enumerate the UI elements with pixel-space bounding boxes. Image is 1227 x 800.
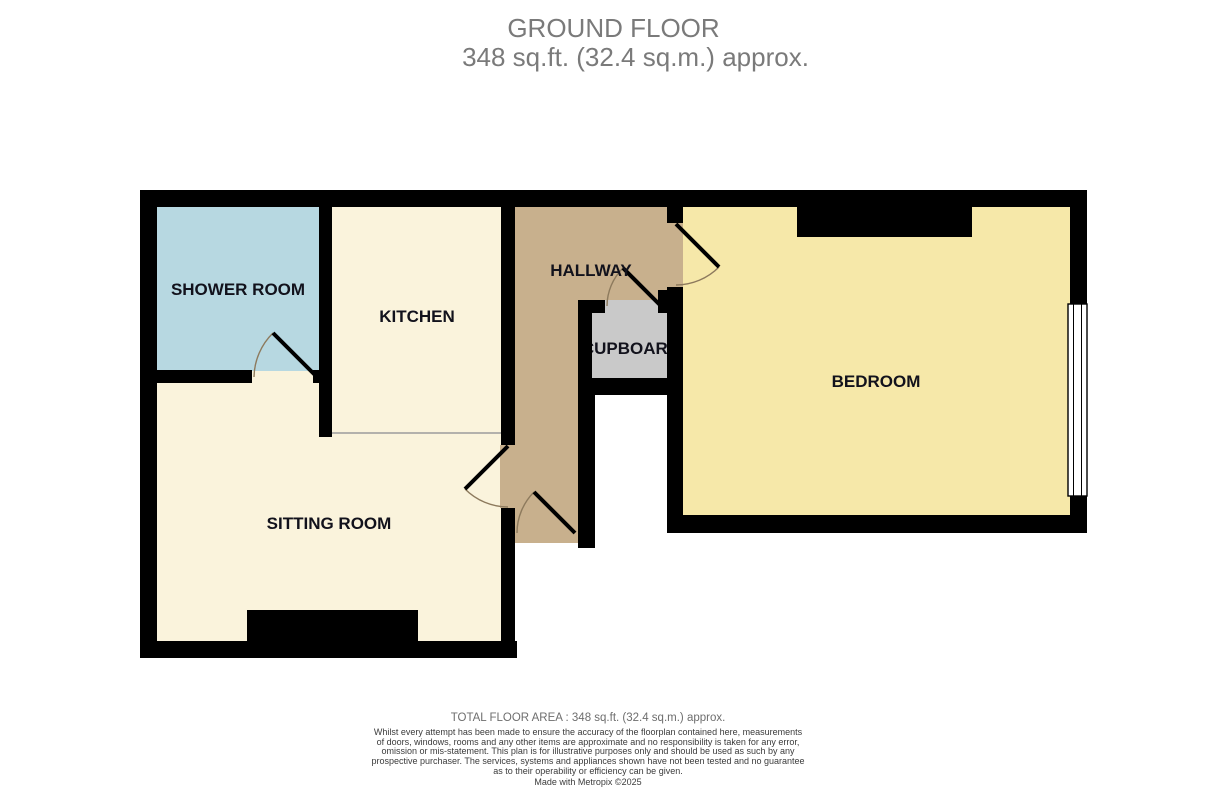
- wall: [1070, 190, 1087, 305]
- metropix-credit: Made with Metropix ©2025: [0, 777, 1176, 788]
- window-pane: [1068, 304, 1087, 496]
- wall: [667, 515, 1087, 533]
- wall: [578, 395, 595, 548]
- wall: [140, 190, 157, 658]
- disclaimer: Whilst every attempt has been made to en…: [0, 728, 1176, 777]
- bedroom-doorway-floor: [667, 222, 683, 287]
- cupboard-label: CUPBOARD: [582, 339, 680, 358]
- kitchen-label: KITCHEN: [379, 307, 455, 326]
- sitting-room-chimney-breast: [247, 610, 418, 658]
- total-floor-area: TOTAL FLOOR AREA : 348 sq.ft. (32.4 sq.m…: [0, 712, 1176, 724]
- disclaimer-line: as to their operability or efficiency ca…: [0, 767, 1176, 777]
- wall: [578, 378, 683, 395]
- bedroom-window: [1068, 304, 1087, 496]
- footer: TOTAL FLOOR AREA : 348 sq.ft. (32.4 sq.m…: [0, 712, 1176, 788]
- sitting-room-label: SITTING ROOM: [267, 514, 392, 533]
- shower-room-label: SHOWER ROOM: [171, 280, 305, 299]
- wall: [140, 370, 252, 383]
- wall: [667, 190, 683, 223]
- wall: [501, 190, 515, 445]
- wall: [1070, 495, 1087, 533]
- wall: [319, 190, 332, 437]
- wall: [667, 287, 683, 533]
- bedroom-floor: [683, 206, 1070, 515]
- bedroom-chimney-breast: [797, 190, 972, 237]
- wall: [658, 290, 683, 313]
- wall: [501, 508, 515, 658]
- bedroom-label: BEDROOM: [832, 372, 921, 391]
- floorplan-drawing: CUPBOARD: [0, 0, 1227, 800]
- floorplan-page: GROUND FLOOR 348 sq.ft. (32.4 sq.m.) app…: [0, 0, 1227, 800]
- wall: [578, 300, 605, 313]
- hallway-label: HALLWAY: [550, 261, 632, 280]
